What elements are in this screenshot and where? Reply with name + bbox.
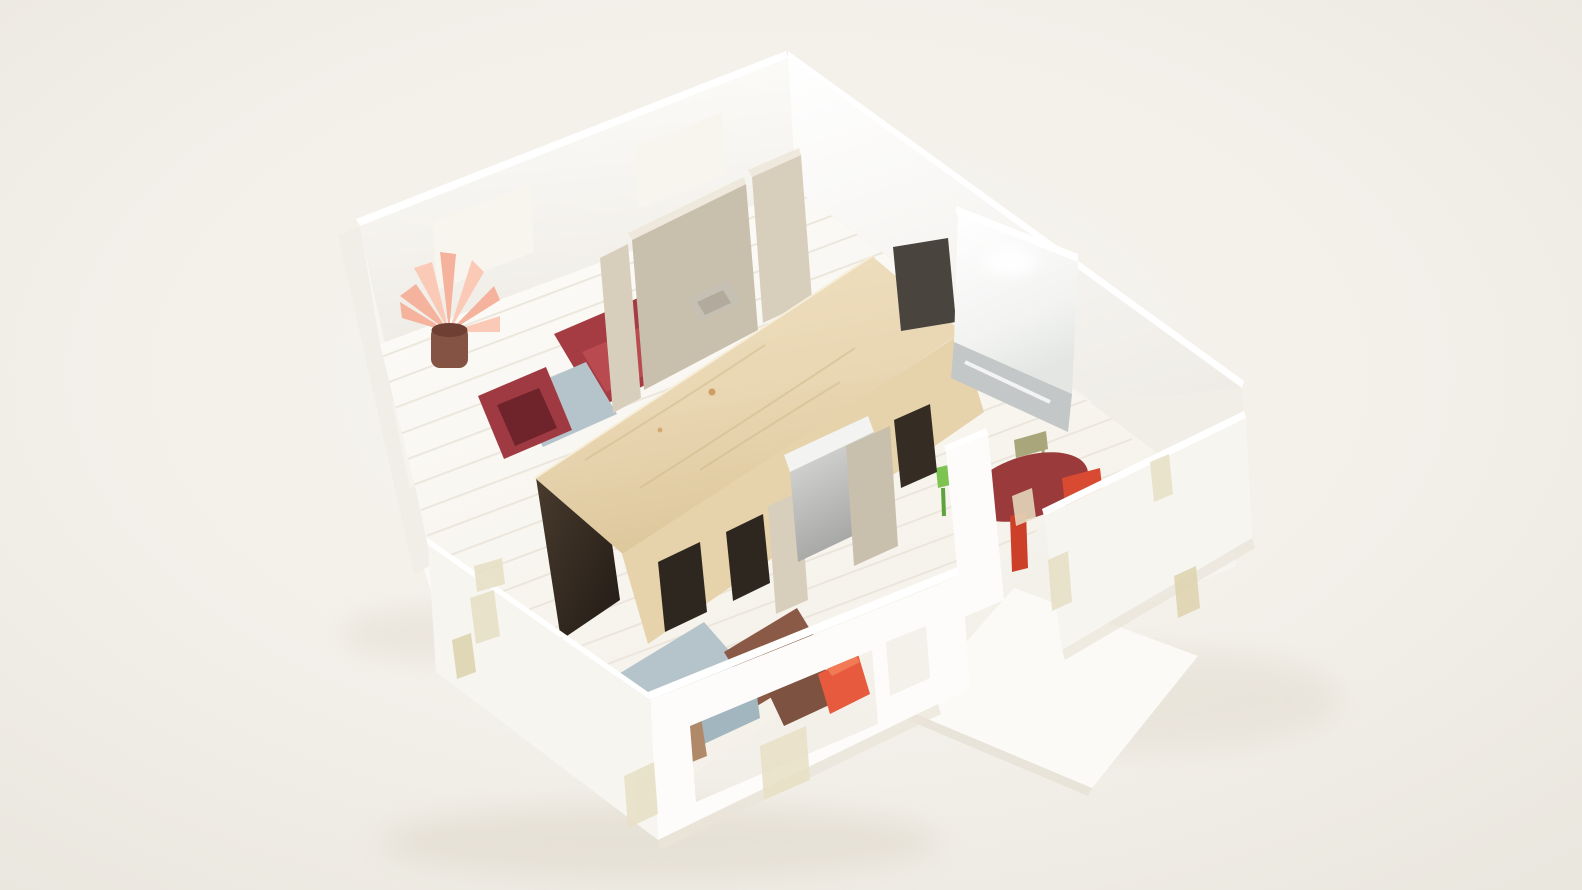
glossy-specular xyxy=(984,248,1036,276)
tape-dining-left xyxy=(1048,551,1072,611)
photo-stage xyxy=(0,0,1582,890)
architectural-model-photo xyxy=(0,0,1582,890)
box-door-open-right xyxy=(846,426,898,566)
wood-knot xyxy=(709,389,716,396)
gray-partition-wedge xyxy=(893,238,956,331)
tape-ne-corner xyxy=(1150,454,1173,502)
wood-knot-2 xyxy=(658,428,663,433)
plant-pot-rim xyxy=(432,323,468,337)
